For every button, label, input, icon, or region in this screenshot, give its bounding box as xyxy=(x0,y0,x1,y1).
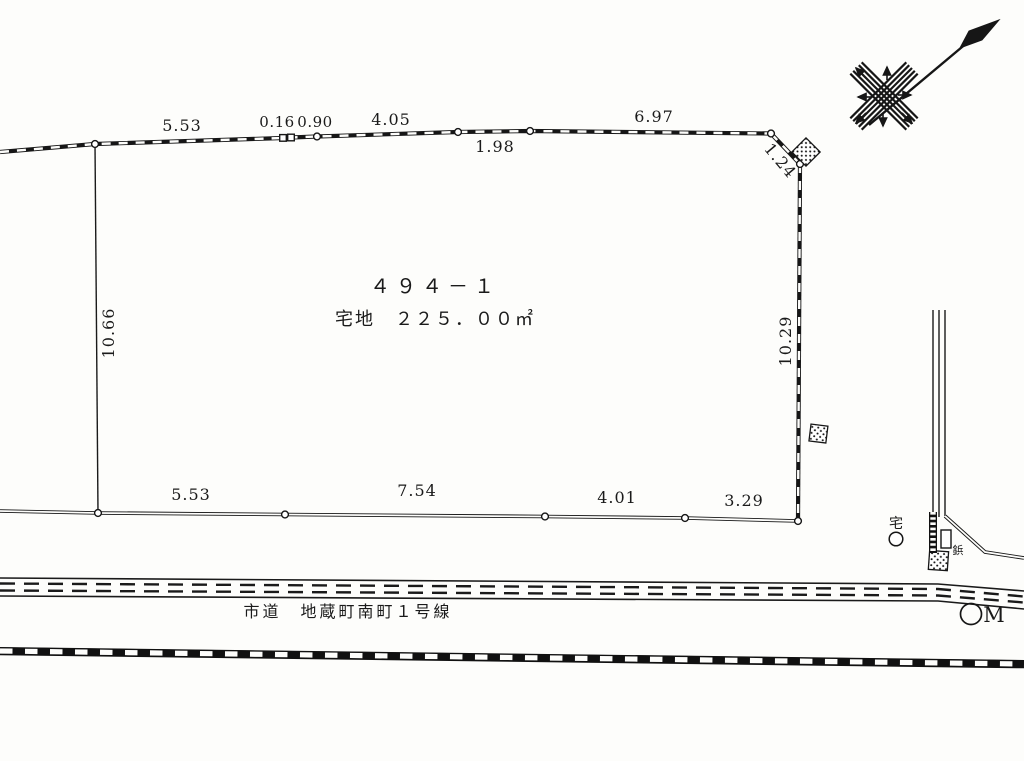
road-band xyxy=(0,578,1024,609)
dim-top-1: 5.53 xyxy=(162,116,202,135)
dim-bottom-2: 7.54 xyxy=(397,481,437,500)
pin-label: 鋲 xyxy=(953,543,964,557)
township-boundary-line xyxy=(0,648,1024,668)
dim-top-2: 0.16 xyxy=(259,113,294,131)
house-circle-icon xyxy=(889,532,903,546)
boundary-left xyxy=(95,144,98,513)
dim-top-5: 1.98 xyxy=(475,137,515,156)
road-name: 市道 地蔵町南町１号線 xyxy=(243,602,452,621)
survey-map-sheet: 5.53 0.16 0.90 4.05 1.98 6.97 1.24 10.66… xyxy=(0,0,1024,761)
dim-left: 10.66 xyxy=(99,308,118,359)
dim-top-6: 6.97 xyxy=(634,107,674,126)
dim-top-4: 4.05 xyxy=(371,110,411,129)
dim-bottom-3: 4.01 xyxy=(597,488,637,507)
cadastral-drawing: 5.53 0.16 0.90 4.05 1.98 6.97 1.24 10.66… xyxy=(0,0,1024,761)
north-arrow-head xyxy=(960,20,999,48)
dim-bottom-1: 5.53 xyxy=(171,485,211,504)
boundary-right xyxy=(798,164,800,521)
monument-road-icon xyxy=(928,550,948,570)
parcel-category-area: 宅地 ２２５．００㎡ xyxy=(335,308,535,330)
benchmark-circle-icon xyxy=(961,604,982,625)
monument-right-icon xyxy=(809,424,828,443)
dim-right: 10.29 xyxy=(776,316,795,367)
benchmark-label: M xyxy=(983,603,1005,627)
adjacent-structure: 鋲 xyxy=(933,310,1024,558)
pin-rect-icon xyxy=(941,530,951,548)
north-arrow xyxy=(850,20,999,130)
dim-top-3: 0.90 xyxy=(297,113,332,131)
boundary-bottom xyxy=(0,511,798,521)
parcel-number: ４９４－１ xyxy=(370,274,500,298)
boundary-top xyxy=(0,131,771,152)
benchmark-marker: M xyxy=(961,603,1005,627)
dim-bottom-4: 3.29 xyxy=(724,491,764,510)
house-label: 宅 xyxy=(889,516,903,532)
house-marker: 宅 xyxy=(889,516,903,546)
